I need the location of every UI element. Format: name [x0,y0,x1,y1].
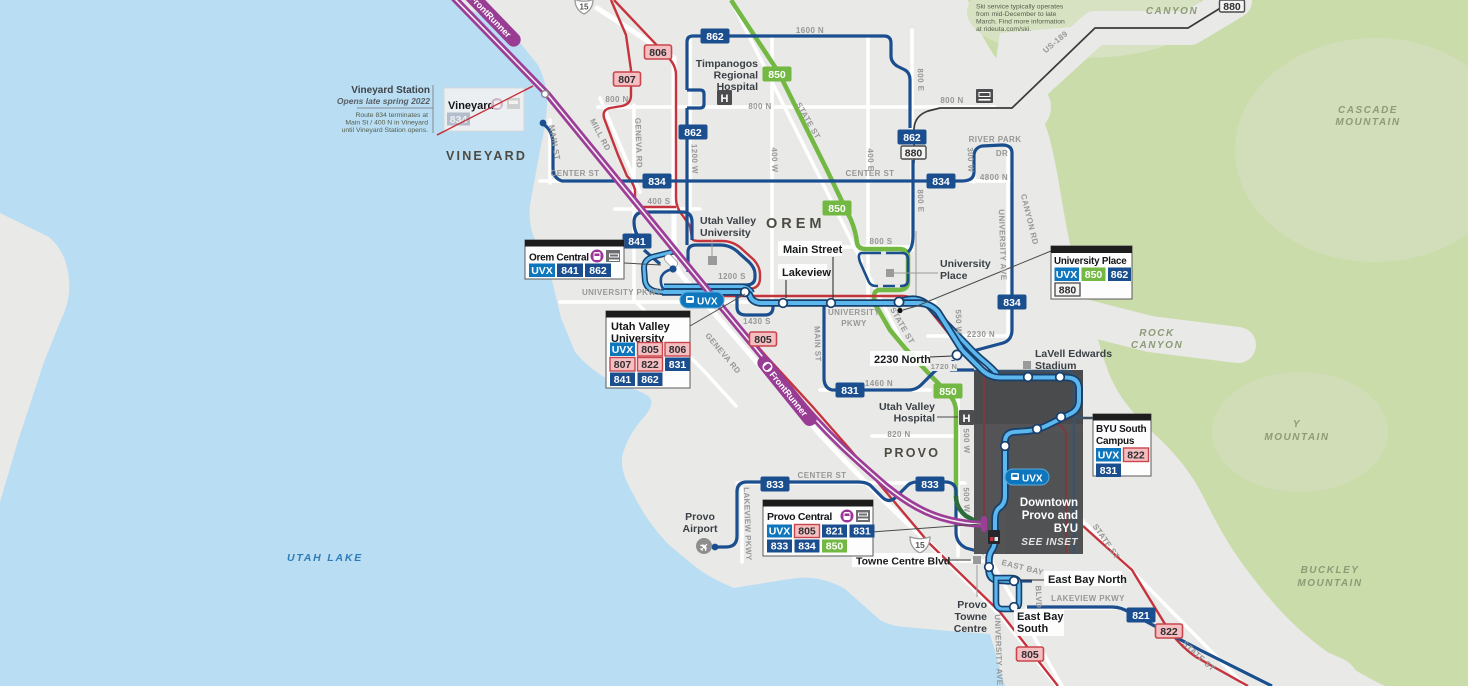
svg-text:862: 862 [1111,269,1129,281]
svg-text:806: 806 [649,47,667,59]
svg-text:822: 822 [1160,626,1178,638]
svg-text:805: 805 [1021,649,1039,661]
svg-text:Provo: Provo [957,599,987,611]
svg-text:March. Find more information: March. Find more information [976,19,1065,26]
svg-text:UVX: UVX [1022,474,1043,485]
svg-text:834: 834 [648,176,666,188]
svg-text:UVX: UVX [697,297,718,308]
svg-text:550 W: 550 W [954,309,964,334]
svg-text:822: 822 [1127,450,1145,462]
svg-text:SEE INSET: SEE INSET [1021,537,1078,548]
svg-text:PROVO: PROVO [884,446,940,460]
svg-text:UVX: UVX [612,344,634,356]
svg-text:500 W: 500 W [962,428,972,453]
svg-text:880: 880 [905,148,923,160]
svg-text:until Vineyard Station opens.: until Vineyard Station opens. [342,127,429,134]
svg-text:East Bay North: East Bay North [1048,574,1127,586]
svg-text:400 W: 400 W [770,147,780,172]
svg-text:841: 841 [561,265,579,277]
svg-text:Lakeview: Lakeview [782,267,831,279]
svg-text:834: 834 [798,541,816,553]
svg-text:Campus: Campus [1096,436,1135,447]
svg-text:800 E: 800 E [916,189,926,212]
svg-text:BUCKLEY: BUCKLEY [1301,565,1360,576]
svg-text:1430 S: 1430 S [743,317,771,326]
svg-text:from mid-December to late: from mid-December to late [976,11,1057,18]
svg-text:833: 833 [766,479,784,491]
svg-text:MOUNTAIN: MOUNTAIN [1335,117,1400,128]
svg-text:UNIVERSITY PKWY: UNIVERSITY PKWY [582,288,662,297]
svg-text:833: 833 [921,479,939,491]
svg-text:Downtown: Downtown [1020,497,1078,509]
svg-text:Centre: Centre [954,623,987,635]
svg-text:806: 806 [669,344,687,356]
svg-text:CANYON: CANYON [1146,6,1198,17]
svg-text:807: 807 [618,74,636,86]
svg-text:University: University [940,258,991,270]
svg-text:Place: Place [940,270,968,282]
svg-text:1200 S: 1200 S [718,272,746,281]
svg-text:at rideuta.com/ski.: at rideuta.com/ski. [976,26,1031,33]
svg-text:VINEYARD: VINEYARD [446,149,527,163]
svg-text:Main Street: Main Street [783,244,843,256]
svg-text:862: 862 [706,31,724,43]
svg-text:841: 841 [614,374,632,386]
svg-text:Provo: Provo [685,511,715,523]
svg-text:BLVD: BLVD [1034,585,1044,608]
svg-text:800 N: 800 N [748,102,771,111]
svg-text:BYU South: BYU South [1096,424,1147,435]
svg-text:Orem Central: Orem Central [529,253,589,264]
svg-text:15: 15 [915,540,925,550]
svg-text:1200 W: 1200 W [689,144,699,174]
svg-text:Opens late spring 2022: Opens late spring 2022 [337,96,430,106]
svg-text:Timpanogos: Timpanogos [696,58,758,70]
svg-text:MAIN ST: MAIN ST [812,326,822,362]
svg-text:4800 N: 4800 N [980,173,1008,182]
svg-text:400 E: 400 E [866,148,876,171]
svg-text:862: 862 [641,374,659,386]
svg-text:MOUNTAIN: MOUNTAIN [1264,432,1329,443]
svg-text:800 S: 800 S [870,237,893,246]
svg-text:1720 N: 1720 N [931,362,958,371]
svg-text:862: 862 [684,127,702,139]
svg-text:PKWY: PKWY [841,319,867,328]
svg-text:820 N: 820 N [887,430,910,439]
svg-text:2230 North: 2230 North [874,354,931,366]
svg-text:807: 807 [614,359,632,371]
svg-text:CENTER ST: CENTER ST [798,471,847,480]
svg-text:University: University [700,227,751,239]
svg-text:UNIVERSITY: UNIVERSITY [828,308,880,317]
svg-text:Main St / 400 N in Vineyard: Main St / 400 N in Vineyard [345,120,428,127]
svg-text:2230 N: 2230 N [967,330,995,339]
svg-text:Stadium: Stadium [1035,360,1076,372]
svg-text:831: 831 [853,526,871,538]
svg-text:800 N: 800 N [940,96,963,105]
svg-text:Airport: Airport [683,523,719,535]
svg-text:500 W: 500 W [962,487,972,512]
svg-text:1460 N: 1460 N [865,379,893,388]
svg-text:850: 850 [768,69,786,81]
svg-text:South: South [1017,623,1048,635]
svg-text:800 N: 800 N [605,95,628,104]
svg-text:850: 850 [826,541,844,553]
svg-text:UTAH LAKE: UTAH LAKE [287,552,363,564]
svg-text:Provo and: Provo and [1022,510,1078,522]
svg-text:Route 834 terminates at: Route 834 terminates at [355,112,428,119]
svg-text:Utah Valley: Utah Valley [700,215,756,227]
svg-text:805: 805 [798,526,816,538]
svg-text:Vineyard: Vineyard [448,100,494,112]
svg-text:1600 N: 1600 N [796,26,824,35]
svg-text:OREM: OREM [766,216,826,232]
svg-text:LaVell Edwards: LaVell Edwards [1035,348,1112,360]
svg-text:H: H [721,93,729,105]
svg-text:400 S: 400 S [648,197,671,206]
svg-text:UVX: UVX [1098,450,1120,462]
svg-text:850: 850 [1085,269,1103,281]
svg-text:GENEVA RD: GENEVA RD [633,118,644,169]
svg-text:Regional: Regional [714,70,758,82]
svg-text:BYU: BYU [1054,523,1078,535]
svg-text:H: H [963,413,971,425]
svg-text:800 E: 800 E [916,68,926,91]
svg-text:821: 821 [1132,610,1150,622]
svg-text:Towne: Towne [955,611,988,623]
svg-text:University Place: University Place [1054,256,1127,267]
svg-text:850: 850 [939,386,957,398]
svg-text:LAKEVIEW PKWY: LAKEVIEW PKWY [1051,594,1125,603]
svg-text:15: 15 [580,3,589,12]
svg-text:880: 880 [1223,1,1241,13]
svg-text:Y: Y [1293,419,1301,430]
svg-text:841: 841 [628,236,646,248]
svg-text:831: 831 [1100,465,1118,477]
svg-text:Vineyard Station: Vineyard Station [351,85,430,96]
svg-text:Hospital: Hospital [894,413,936,425]
svg-text:805: 805 [641,344,659,356]
svg-text:862: 862 [589,265,607,277]
svg-text:822: 822 [641,359,659,371]
svg-text:CENTER ST: CENTER ST [551,169,600,178]
svg-text:UVX: UVX [531,265,553,277]
svg-text:880: 880 [1059,285,1077,297]
svg-text:805: 805 [754,334,772,346]
svg-text:East Bay: East Bay [1017,611,1064,623]
svg-text:834: 834 [1003,297,1021,309]
svg-text:MOUNTAIN: MOUNTAIN [1297,578,1362,589]
svg-text:CANYON: CANYON [1131,340,1183,351]
svg-text:Provo Central: Provo Central [767,511,832,523]
svg-text:862: 862 [903,132,921,144]
svg-text:831: 831 [669,359,687,371]
svg-text:RIVER PARK: RIVER PARK [969,135,1022,144]
svg-text:821: 821 [826,526,844,538]
svg-text:300 W: 300 W [966,147,976,172]
svg-text:UVX: UVX [1056,269,1078,281]
svg-text:CASCADE: CASCADE [1338,105,1398,116]
svg-text:Towne Centre Blvd: Towne Centre Blvd [856,556,950,568]
svg-text:Ski service typically operates: Ski service typically operates [976,4,1064,11]
svg-text:833: 833 [771,541,789,553]
svg-text:834: 834 [932,176,950,188]
svg-text:Utah Valley: Utah Valley [611,321,671,333]
svg-text:850: 850 [828,203,846,215]
svg-text:ROCK: ROCK [1139,328,1174,339]
svg-text:UVX: UVX [769,526,791,538]
svg-text:831: 831 [841,385,859,397]
svg-text:DR: DR [996,149,1008,158]
svg-text:Utah Valley: Utah Valley [879,401,935,413]
svg-text:Hospital: Hospital [717,81,759,93]
